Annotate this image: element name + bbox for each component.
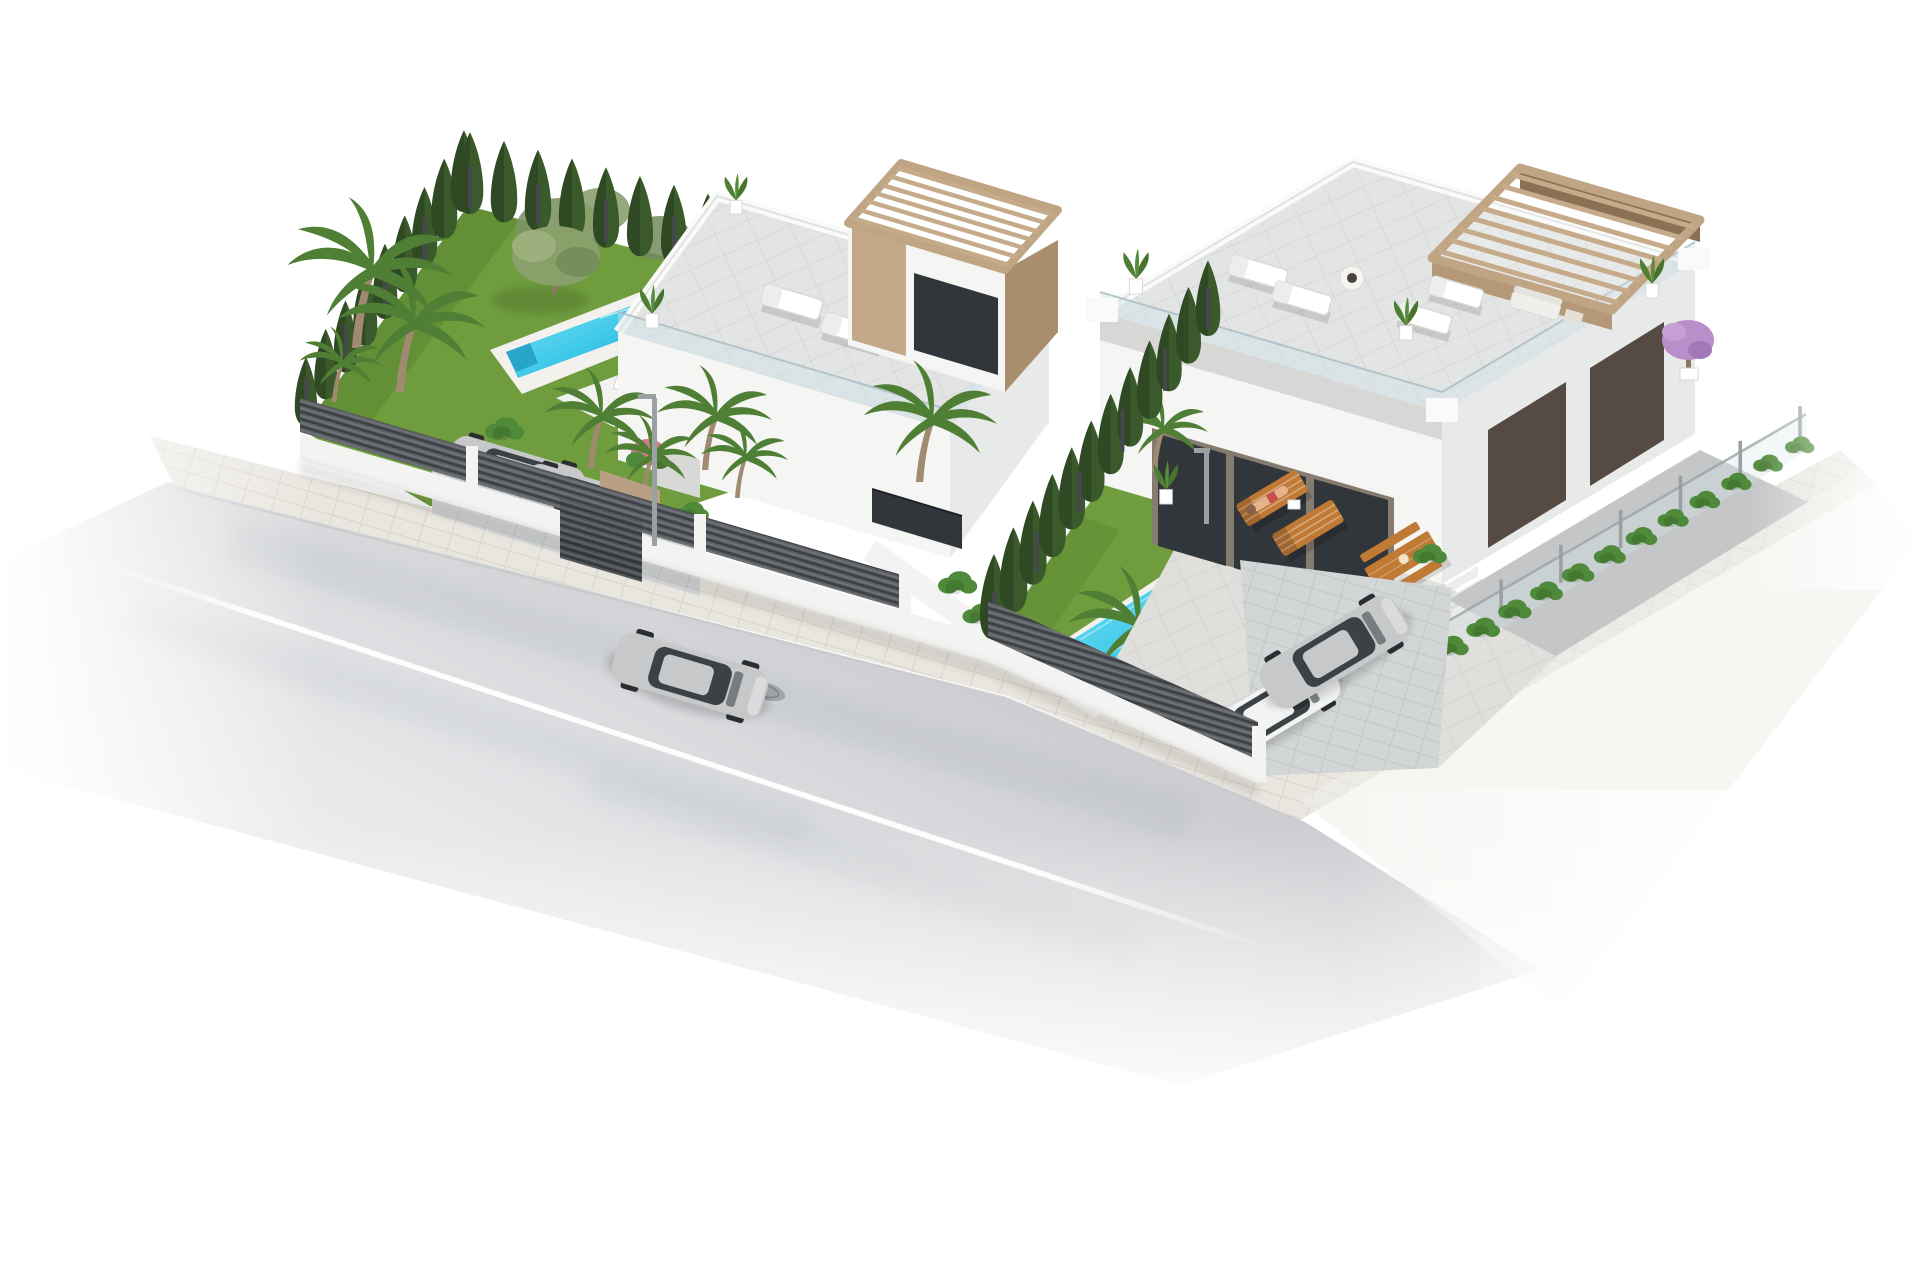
hedge-end-fade <box>1750 370 1920 590</box>
round-fire-table <box>1340 266 1364 290</box>
fence-pillar <box>694 514 706 560</box>
render-canvas <box>0 0 1920 1280</box>
side-table <box>1288 500 1300 509</box>
corner-fade <box>1480 880 1920 1280</box>
tower-tan-panel <box>852 224 906 356</box>
fence-pillar <box>899 574 911 622</box>
fence-pillar <box>466 446 478 492</box>
corner-pillar <box>1252 726 1266 782</box>
scene-aerial-render <box>0 0 1920 1280</box>
